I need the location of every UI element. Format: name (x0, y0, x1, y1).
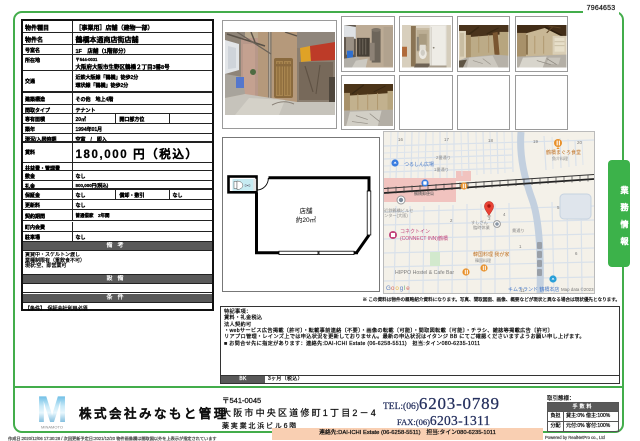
svg-text:o: o (391, 285, 395, 292)
svg-text:e: e (406, 285, 410, 292)
svg-text:鶴橋郵便局: 鶴橋郵便局 (414, 190, 434, 196)
svg-text:魚介料理: 魚介料理 (552, 155, 568, 161)
svg-text:18: 18 (488, 138, 493, 143)
svg-text:臨時休業: 臨時休業 (473, 224, 491, 231)
svg-text:2番通り: 2番通り (436, 154, 451, 161)
svg-text:17: 17 (444, 137, 449, 142)
svg-text:つるしん広場: つるしん広場 (404, 161, 434, 168)
svg-text:コネクトイン: コネクトイン (400, 229, 430, 235)
svg-text:20: 20 (577, 140, 582, 145)
svg-text:鶴橋まぐろ食堂: 鶴橋まぐろ食堂 (546, 149, 581, 156)
svg-text:l: l (404, 285, 405, 292)
svg-text:キムチランド 鶴橋本店: キムチランド 鶴橋本店 (508, 286, 559, 293)
svg-text:店舗: 店舗 (300, 206, 314, 215)
svg-text:o: o (395, 285, 399, 292)
svg-text:(CONNECT INN)鶴橋: (CONNECT INN)鶴橋 (400, 235, 448, 242)
svg-text:貫通り: 貫通り (512, 227, 525, 234)
svg-text:約20㎡: 約20㎡ (296, 215, 317, 224)
svg-text:HIPPO Hostel & Cafe Bar: HIPPO Hostel & Cafe Bar (395, 270, 454, 276)
svg-text:ンター(大阪): ンター(大阪) (384, 212, 408, 219)
svg-text:Map data ©2023: Map data ©2023 (561, 287, 594, 292)
svg-text:韓国料理: 韓国料理 (475, 257, 491, 263)
svg-text:19: 19 (533, 139, 538, 144)
svg-text:MINAMOTO: MINAMOTO (41, 425, 63, 430)
svg-text:16: 16 (398, 137, 403, 142)
svg-text:韓国料理 我が家: 韓国料理 我が家 (473, 251, 509, 258)
svg-text:1番通り: 1番通り (434, 166, 449, 173)
